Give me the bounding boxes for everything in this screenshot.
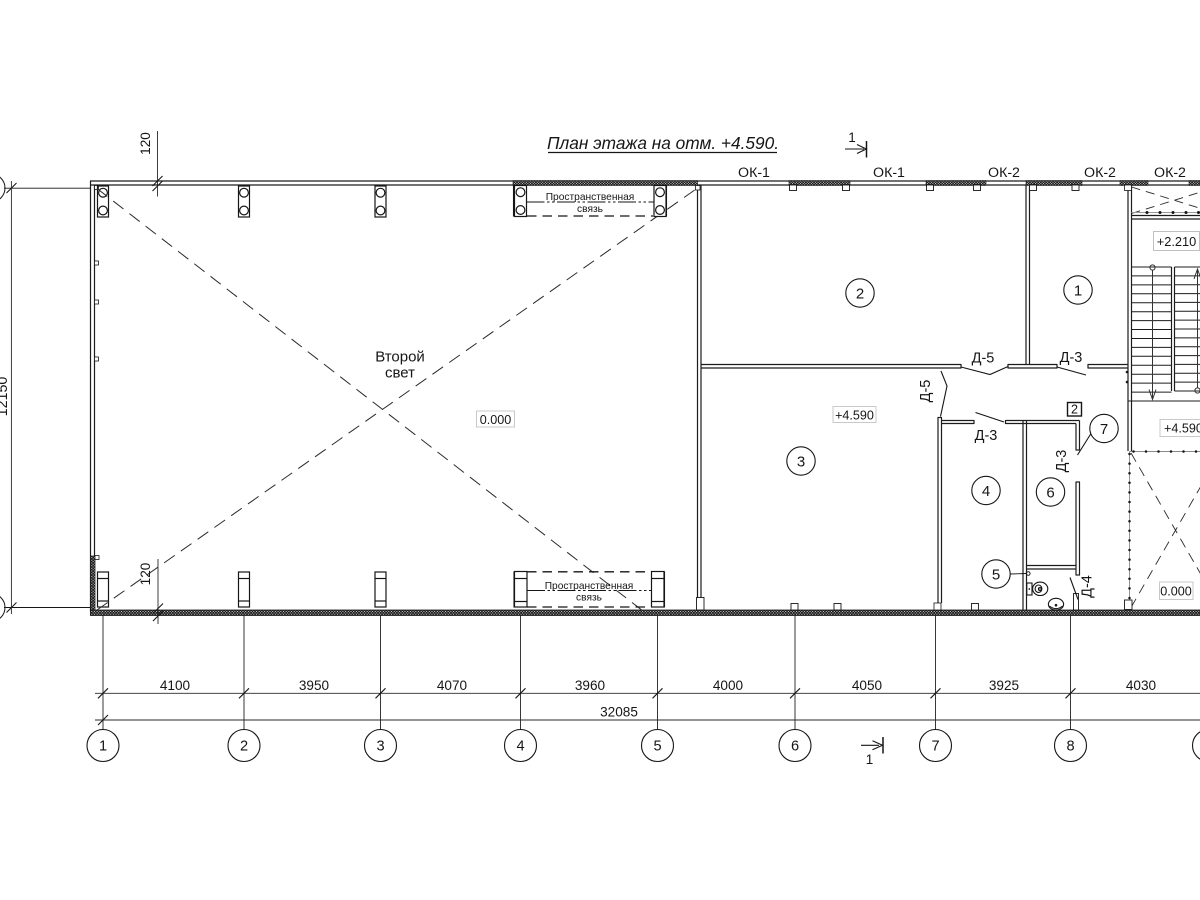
svg-text:Д-5: Д-5	[972, 351, 995, 367]
svg-text:4: 4	[982, 483, 990, 500]
svg-text:5: 5	[653, 739, 661, 755]
svg-text:1: 1	[848, 130, 856, 145]
svg-text:3: 3	[797, 453, 805, 470]
svg-text:Второй: Второй	[375, 349, 425, 366]
svg-text:Д-3: Д-3	[975, 428, 998, 444]
svg-text:4000: 4000	[713, 678, 744, 693]
svg-text:3950: 3950	[299, 678, 330, 693]
svg-text:+4.590: +4.590	[1164, 422, 1200, 436]
svg-text:1: 1	[1074, 282, 1082, 299]
svg-text:3: 3	[376, 739, 384, 755]
svg-text:6: 6	[791, 739, 799, 755]
svg-text:Пространственная: Пространственная	[545, 581, 634, 592]
svg-text:0.000: 0.000	[480, 413, 512, 427]
svg-text:свет: свет	[385, 365, 415, 382]
svg-text:4030: 4030	[1126, 678, 1157, 693]
svg-text:ОК-2: ОК-2	[1084, 165, 1116, 181]
svg-text:120: 120	[138, 562, 153, 585]
svg-text:2: 2	[240, 739, 248, 755]
svg-text:3960: 3960	[575, 678, 606, 693]
svg-text:4050: 4050	[852, 678, 883, 693]
svg-text:5: 5	[992, 566, 1000, 583]
svg-text:4: 4	[516, 739, 524, 755]
svg-text:0.000: 0.000	[1160, 585, 1192, 599]
svg-text:ОК-1: ОК-1	[873, 165, 905, 181]
svg-text:8: 8	[1066, 739, 1074, 755]
svg-text:связь: связь	[577, 204, 603, 215]
svg-text:+2.210: +2.210	[1157, 234, 1197, 249]
svg-text:Д-5: Д-5	[918, 380, 934, 403]
svg-text:ОК-2: ОК-2	[988, 165, 1020, 181]
svg-text:7: 7	[1100, 421, 1108, 438]
svg-text:План этажа на отм. +4.590.: План этажа на отм. +4.590.	[547, 133, 779, 153]
svg-text:Д-4: Д-4	[1080, 575, 1096, 598]
svg-text:Д-3: Д-3	[1060, 350, 1083, 366]
svg-text:1: 1	[99, 739, 107, 755]
svg-text:2: 2	[1071, 403, 1078, 417]
svg-text:4070: 4070	[437, 678, 468, 693]
svg-text:1: 1	[866, 752, 874, 767]
svg-text:2: 2	[856, 285, 864, 302]
svg-text:7: 7	[931, 739, 939, 755]
svg-text:6: 6	[1046, 484, 1054, 501]
svg-text:12150: 12150	[0, 377, 11, 417]
svg-text:Пространственная: Пространственная	[546, 192, 635, 203]
svg-text:3925: 3925	[989, 678, 1019, 693]
svg-text:32085: 32085	[600, 705, 638, 720]
svg-text:4100: 4100	[160, 678, 191, 693]
svg-text:связь: связь	[576, 593, 602, 604]
svg-text:+4.590: +4.590	[835, 409, 874, 423]
svg-text:Д-3: Д-3	[1054, 450, 1070, 473]
svg-text:120: 120	[138, 132, 153, 155]
svg-text:ОК-2: ОК-2	[1154, 165, 1186, 181]
svg-text:ОК-1: ОК-1	[738, 165, 770, 181]
